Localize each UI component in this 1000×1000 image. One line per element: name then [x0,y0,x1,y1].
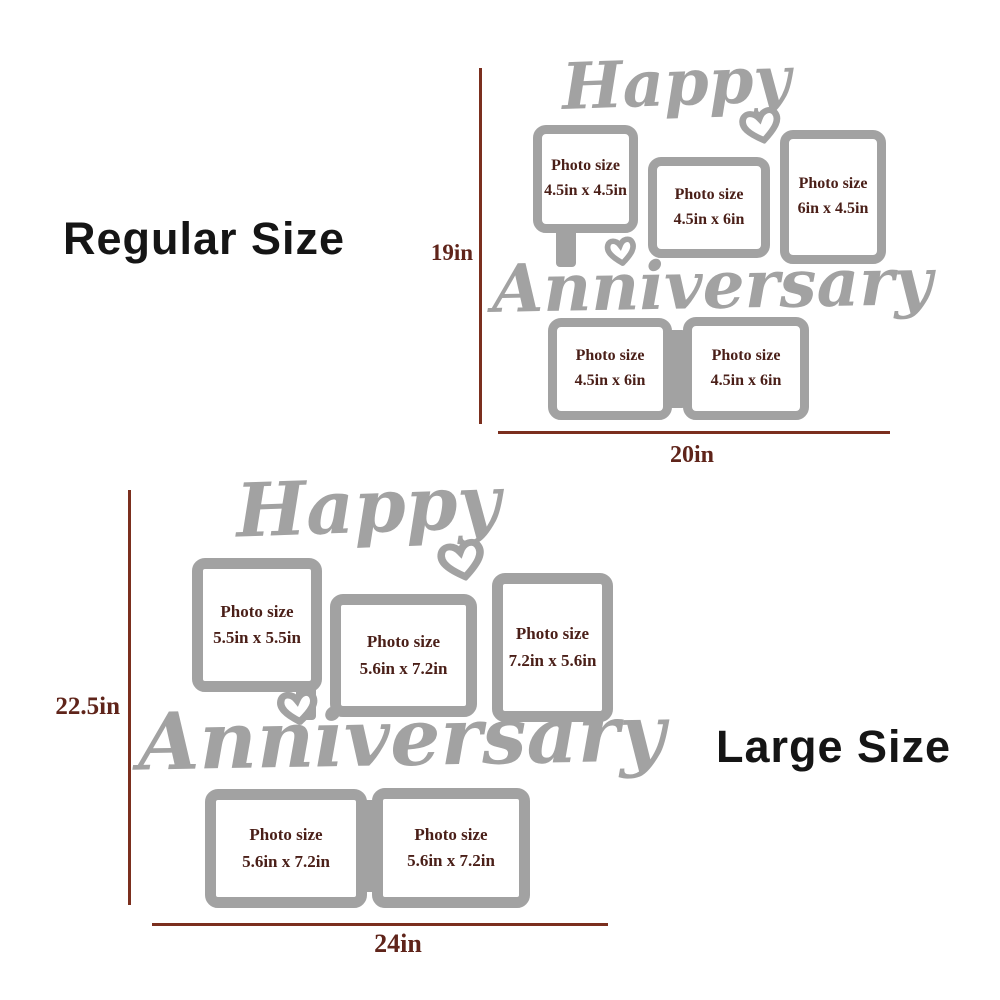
heart-icon [602,235,640,268]
regular-height-value: 19in [415,240,473,266]
photo-size-caption: Photo size [367,629,440,655]
photo-size-value: 4.5in x 6in [711,369,782,394]
photo-size-value: 5.6in x 7.2in [360,656,448,682]
photo-size-caption: Photo size [675,183,744,208]
photo-size-caption: Photo size [576,344,645,369]
photo-size-value: 5.6in x 7.2in [242,849,330,875]
photo-frame: Photo size 6in x 4.5in [780,130,886,264]
photo-size-caption: Photo size [516,621,589,647]
photo-frame: Photo size 4.5in x 6in [648,157,770,258]
heart-icon [274,687,322,728]
large-size-label: Large Size [716,721,951,773]
photo-size-value: 5.6in x 7.2in [407,848,495,874]
photo-size-caption: Photo size [414,822,487,848]
photo-frame: Photo size 5.6in x 7.2in [205,789,367,908]
regular-height-dimension-line [479,68,482,424]
photo-size-value: 4.5in x 6in [575,369,646,394]
regular-width-dimension-line [498,431,890,434]
large-width-value: 24in [363,929,433,959]
photo-frame: Photo size 7.2in x 5.6in [492,573,613,722]
photo-size-value: 4.5in x 6in [674,208,745,233]
photo-size-caption: Photo size [799,172,868,197]
photo-frame: Photo size 5.5in x 5.5in [192,558,322,692]
large-height-value: 22.5in [30,693,120,721]
photo-frame: Photo size 4.5in x 6in [683,317,809,420]
large-happy-script-word: Happy [235,465,502,548]
photo-size-caption: Photo size [551,154,620,179]
photo-size-caption: Photo size [249,822,322,848]
regular-width-value: 20in [660,442,724,469]
photo-size-value: 7.2in x 5.6in [509,648,597,674]
large-height-dimension-line [128,490,131,905]
photo-size-caption: Photo size [712,344,781,369]
regular-size-label: Regular Size [63,213,345,265]
photo-size-value: 4.5in x 4.5in [544,179,627,204]
photo-size-value: 5.5in x 5.5in [213,625,301,651]
photo-size-caption: Photo size [220,599,293,625]
photo-frame: Photo size 5.6in x 7.2in [372,788,530,908]
photo-frame: Photo size 4.5in x 4.5in [533,125,638,233]
photo-frame: Photo size 4.5in x 6in [548,318,672,420]
large-width-dimension-line [152,923,608,926]
photo-size-value: 6in x 4.5in [798,197,869,222]
product-size-infographic: Regular Size 19in 20in Happy Anniversary… [0,0,1000,1000]
photo-frame: Photo size 5.6in x 7.2in [330,594,477,717]
